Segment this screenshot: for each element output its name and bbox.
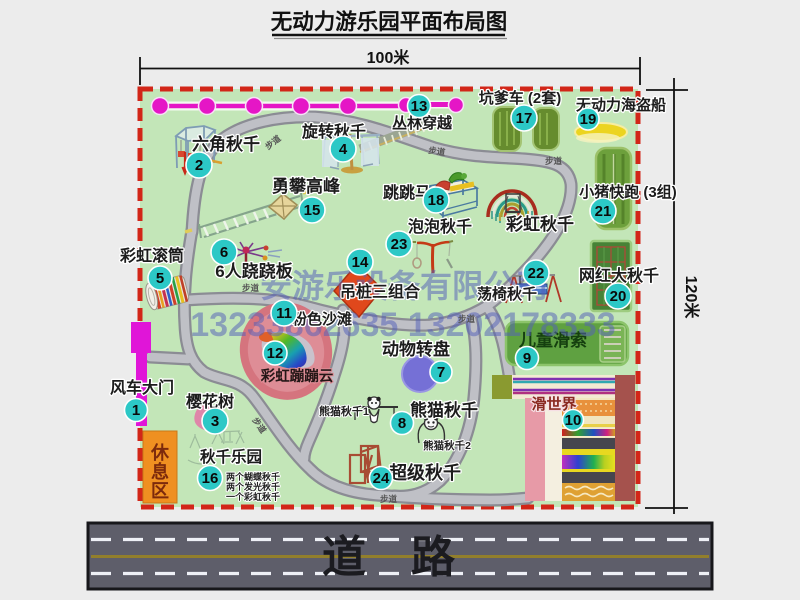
svg-text:旋转秋千: 旋转秋千	[301, 122, 366, 141]
svg-text:13: 13	[411, 98, 428, 115]
svg-text:网红大秋千: 网红大秋千	[579, 266, 659, 285]
svg-text:步道: 步道	[545, 156, 563, 166]
svg-text:6: 6	[220, 244, 228, 261]
svg-text:彩虹秋千: 彩虹秋千	[505, 214, 574, 234]
svg-text:道: 道	[322, 533, 366, 582]
svg-text:14: 14	[352, 254, 369, 271]
svg-text:熊猫秋千1: 熊猫秋千1	[319, 404, 369, 418]
svg-text:泡泡秋千: 泡泡秋千	[408, 217, 472, 236]
svg-text:息: 息	[151, 461, 169, 482]
svg-text:秋千乐园: 秋千乐园	[200, 447, 262, 466]
svg-text:两个发光秋千: 两个发光秋千	[226, 481, 280, 492]
svg-text:熊猫秋千2: 熊猫秋千2	[423, 439, 471, 452]
svg-text:20: 20	[610, 288, 627, 305]
svg-text:熊猫秋千: 熊猫秋千	[410, 400, 478, 420]
svg-text:7: 7	[437, 364, 445, 381]
svg-text:5: 5	[156, 270, 164, 287]
svg-text:100米: 100米	[367, 48, 411, 67]
svg-text:步道: 步道	[458, 314, 476, 324]
svg-text:步道: 步道	[242, 283, 260, 293]
svg-text:24: 24	[373, 470, 390, 487]
svg-text:粉色沙滩: 粉色沙滩	[292, 310, 352, 328]
svg-text:风车大门: 风车大门	[110, 378, 174, 397]
svg-text:无动力游乐园平面布局图: 无动力游乐园平面布局图	[271, 9, 508, 34]
svg-text:3: 3	[211, 413, 219, 430]
svg-text:15: 15	[304, 202, 321, 219]
svg-text:彩虹滚筒: 彩虹滚筒	[119, 246, 184, 265]
svg-text:12: 12	[267, 345, 284, 362]
svg-text:吊桩三组合: 吊桩三组合	[340, 282, 421, 301]
svg-text:坑爹车 (2套): 坑爹车 (2套)	[479, 89, 562, 107]
svg-text:一个彩虹秋千: 一个彩虹秋千	[226, 491, 280, 502]
svg-text:2: 2	[195, 157, 203, 174]
svg-text:彩虹蹦蹦云: 彩虹蹦蹦云	[260, 367, 334, 385]
svg-text:10: 10	[565, 412, 582, 429]
svg-text:1: 1	[132, 402, 140, 419]
svg-text:120米: 120米	[682, 276, 701, 320]
svg-text:区: 区	[151, 481, 169, 501]
svg-text:9: 9	[523, 350, 531, 367]
svg-text:21: 21	[595, 203, 612, 220]
svg-text:18: 18	[428, 192, 445, 209]
svg-text:4: 4	[339, 141, 348, 158]
svg-text:17: 17	[516, 110, 533, 127]
svg-text:勇攀高峰: 勇攀高峰	[272, 176, 341, 196]
svg-text:超级秋千: 超级秋千	[389, 462, 461, 483]
svg-text:两个蝴蝶秋千: 两个蝴蝶秋千	[226, 471, 280, 482]
svg-text:六角秋千: 六角秋千	[192, 134, 260, 154]
svg-text:19: 19	[580, 111, 597, 128]
svg-text:步道: 步道	[380, 494, 398, 504]
svg-text:22: 22	[528, 265, 545, 282]
svg-text:动物转盘: 动物转盘	[382, 339, 450, 359]
svg-text:休: 休	[150, 442, 170, 463]
svg-text:16: 16	[202, 470, 219, 487]
svg-text:小猪快跑 (3组): 小猪快跑 (3组)	[579, 183, 677, 201]
svg-text:13233862635 13202178333: 13233862635 13202178333	[190, 306, 615, 344]
svg-text:11: 11	[276, 305, 292, 322]
svg-text:路: 路	[411, 533, 456, 582]
svg-text:荡椅秋千: 荡椅秋千	[477, 285, 537, 303]
svg-text:23: 23	[391, 236, 408, 253]
svg-text:8: 8	[398, 415, 406, 432]
